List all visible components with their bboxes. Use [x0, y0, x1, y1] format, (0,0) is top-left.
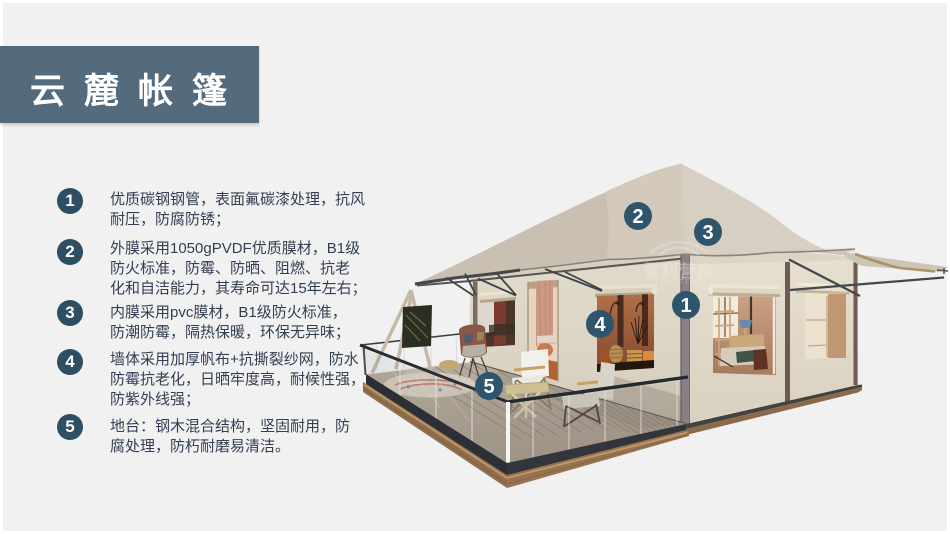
svg-text:5: 5: [483, 376, 494, 398]
svg-text:雪利营房: 雪利营房: [643, 261, 715, 281]
svg-text:4: 4: [594, 314, 606, 336]
svg-text:2: 2: [632, 206, 643, 228]
svg-text:YULI TENT: YULI TENT: [654, 279, 703, 286]
svg-text:1: 1: [680, 295, 691, 317]
svg-text:3: 3: [702, 222, 713, 244]
